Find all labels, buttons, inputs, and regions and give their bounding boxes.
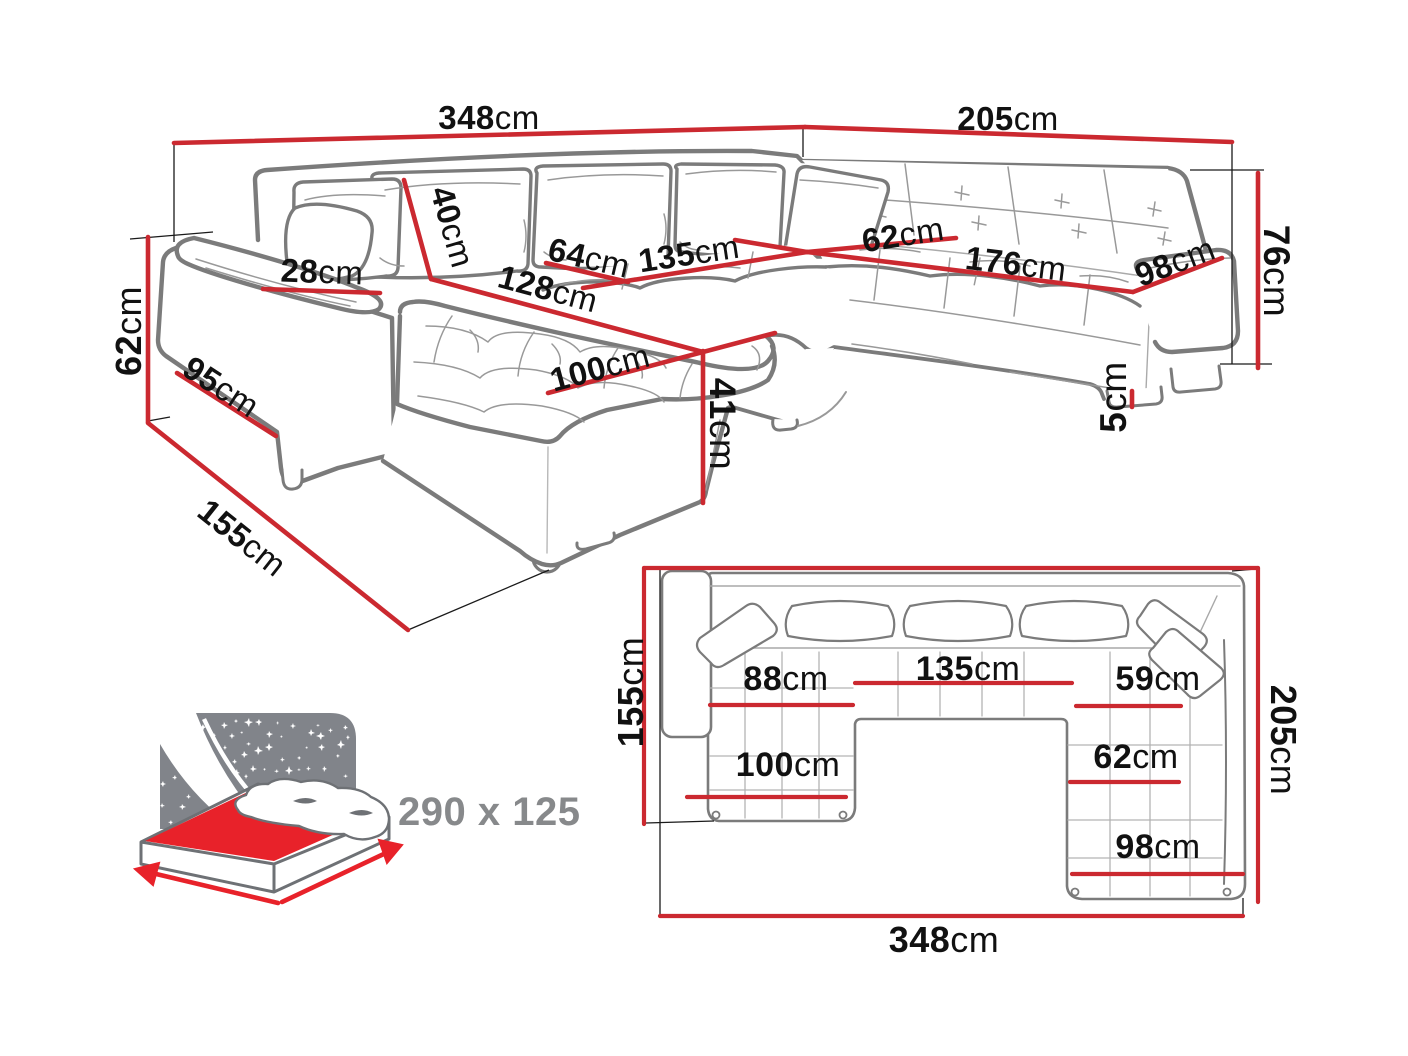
svg-text:135cm: 135cm — [916, 650, 1021, 688]
svg-text:5cm: 5cm — [1093, 361, 1134, 432]
svg-text:348cm: 348cm — [438, 99, 540, 136]
svg-text:290 x 125: 290 x 125 — [398, 790, 580, 834]
svg-text:205cm: 205cm — [957, 100, 1059, 137]
svg-text:76cm: 76cm — [1256, 225, 1297, 317]
svg-text:62cm: 62cm — [1093, 738, 1178, 776]
svg-text:88cm: 88cm — [743, 660, 828, 698]
svg-text:348cm: 348cm — [889, 919, 1000, 960]
svg-text:28cm: 28cm — [280, 252, 364, 292]
svg-text:98cm: 98cm — [1115, 828, 1200, 866]
svg-text:59cm: 59cm — [1115, 660, 1200, 698]
svg-text:155cm: 155cm — [610, 637, 651, 748]
svg-text:41cm: 41cm — [702, 378, 743, 470]
svg-text:62cm: 62cm — [108, 286, 149, 376]
svg-text:100cm: 100cm — [736, 746, 841, 784]
svg-text:205cm: 205cm — [1263, 685, 1304, 796]
